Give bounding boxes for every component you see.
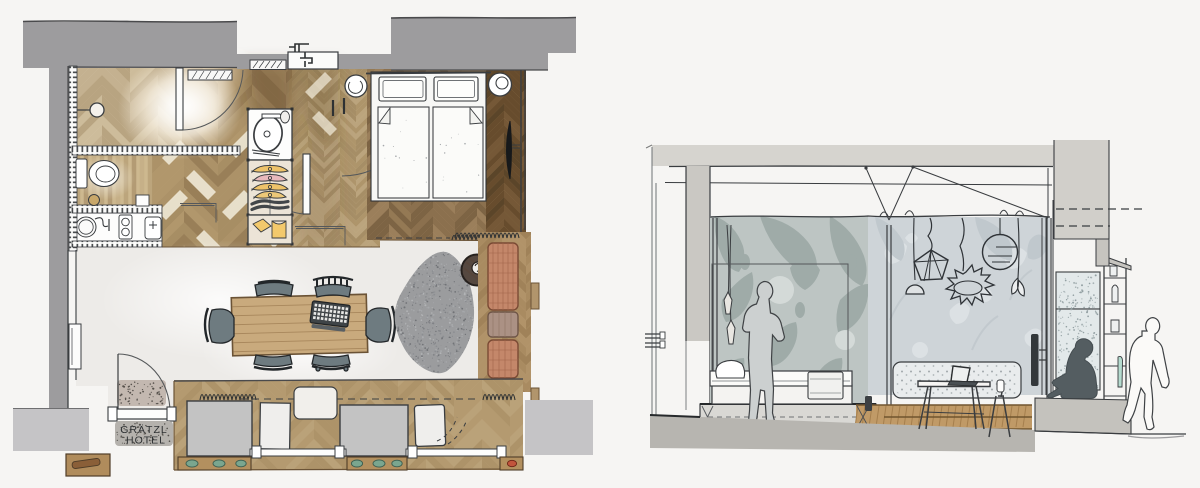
svg-text:HOTEL: HOTEL — [126, 435, 166, 447]
